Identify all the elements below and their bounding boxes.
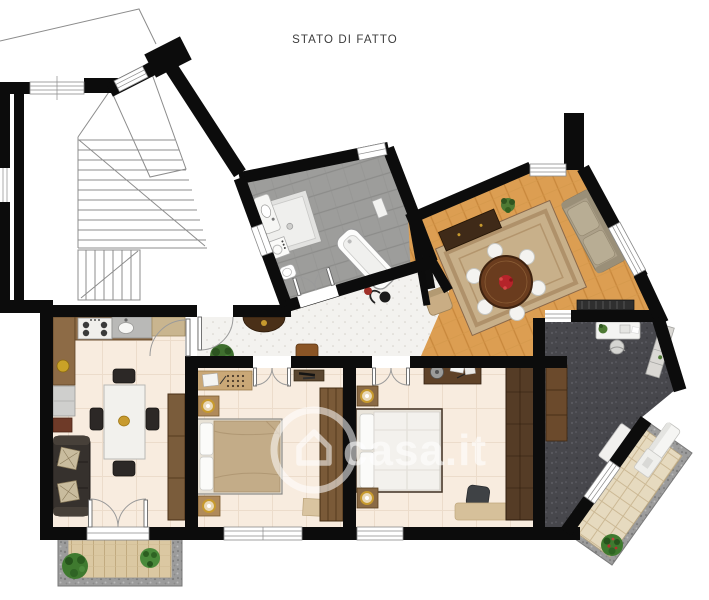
kitchen-counter-left: [53, 317, 75, 385]
floor-plan: STATO DI FATTO: [0, 0, 709, 600]
dining-chair: [146, 408, 159, 430]
double-bed: [197, 419, 282, 494]
rug: [455, 503, 508, 520]
floor-plan-page: STATO DI FATTO: [0, 0, 709, 600]
potted-plant: [62, 553, 88, 579]
console-decor: [261, 320, 267, 326]
watermark-text: casa.it: [343, 426, 487, 475]
sofa-pillow: [57, 481, 79, 503]
duvet: [214, 421, 280, 492]
sofa-pillow: [57, 447, 80, 470]
dining-table: [104, 385, 145, 459]
pillow: [200, 423, 213, 455]
potted-plant: [140, 548, 160, 568]
plan-title: STATO DI FATTO: [292, 34, 398, 46]
stairwell-opening: [0, 168, 10, 202]
nightstand: [357, 488, 378, 508]
stove: [78, 318, 112, 339]
dining-chair: [113, 369, 135, 383]
kitchen-cabinet: [53, 418, 72, 432]
desk: [596, 322, 640, 339]
wall-shelf: [294, 370, 324, 381]
dining-chair: [90, 408, 103, 430]
pillow: [200, 457, 213, 490]
study-doorway: [545, 310, 571, 322]
dining-chair: [113, 461, 135, 476]
bedroom-1-window: [224, 527, 302, 540]
nightstand: [357, 386, 378, 406]
desk: [197, 371, 252, 390]
kitchen-sink-unit: [112, 317, 152, 338]
nightstand: [198, 396, 219, 416]
radiator: [577, 300, 634, 310]
wardrobe: [506, 360, 534, 520]
kitchen-sink-bowl: [57, 360, 69, 372]
sofa: [53, 436, 90, 516]
nightstand: [198, 496, 220, 516]
living-room-window: [530, 164, 566, 176]
flower-plant: [601, 534, 623, 556]
bedroom-2-window: [357, 527, 403, 540]
cabinet: [546, 365, 567, 441]
kitchen-counter-right: [152, 317, 185, 336]
pillar: [564, 113, 584, 170]
fridge: [53, 386, 75, 416]
kitchen-wardrobe: [168, 394, 185, 520]
